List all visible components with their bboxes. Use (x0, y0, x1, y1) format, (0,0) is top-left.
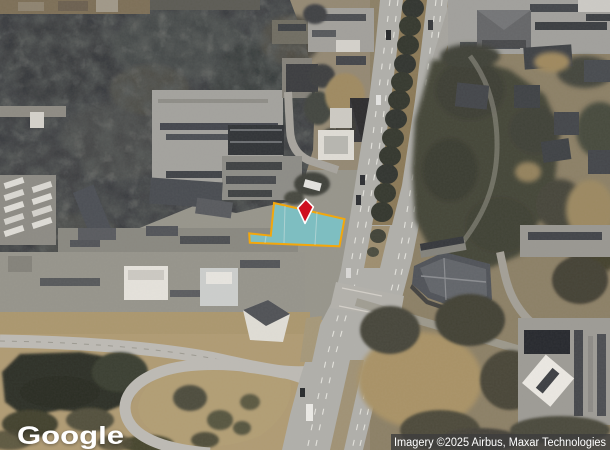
svg-text:Imagery ©2025 Airbus, Maxar Te: Imagery ©2025 Airbus, Maxar Technologies (394, 437, 606, 449)
svg-text:Google: Google (17, 422, 124, 450)
